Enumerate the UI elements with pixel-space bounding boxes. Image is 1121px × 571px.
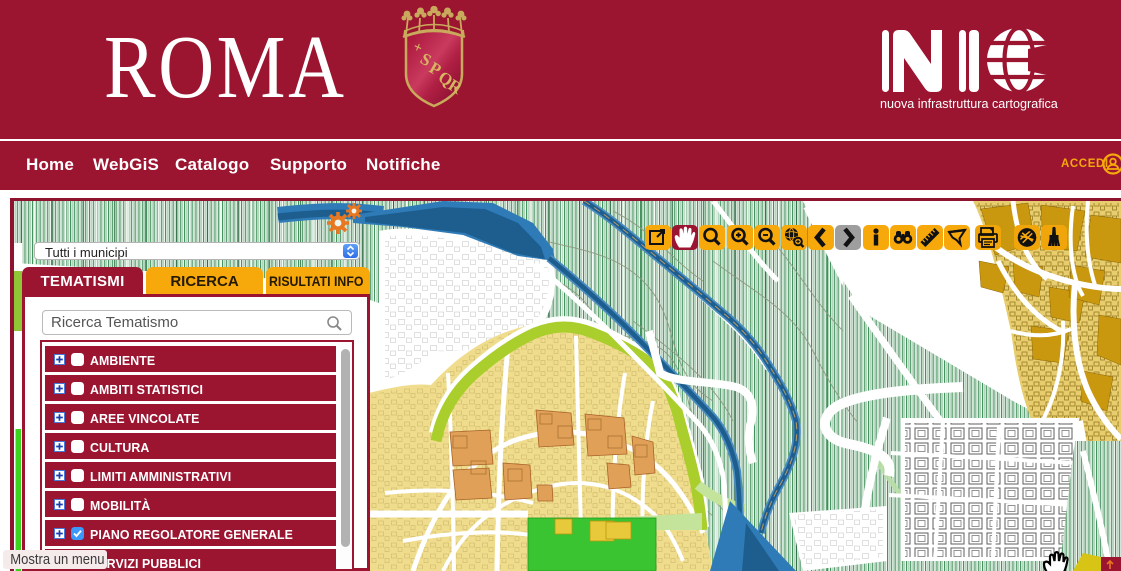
svg-text:nuova infrastruttura cartograf: nuova infrastruttura cartografica [880,97,1058,111]
